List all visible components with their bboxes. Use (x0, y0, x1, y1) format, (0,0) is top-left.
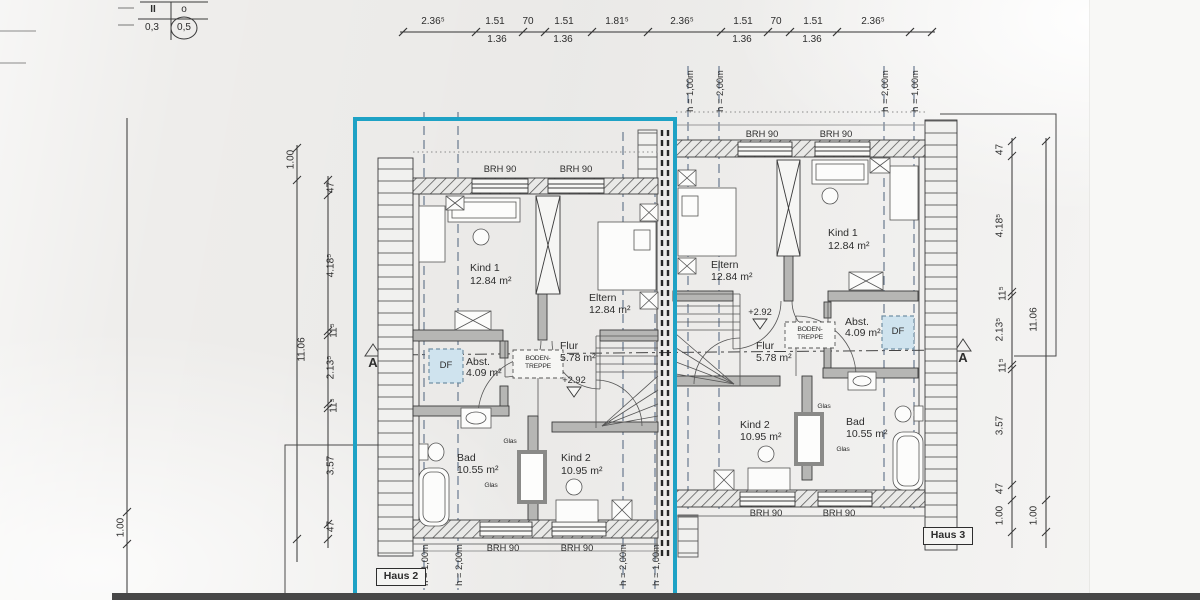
right-dimension-chain (1008, 137, 1050, 548)
dim-top-8: 1.51 (791, 16, 835, 27)
haus2-level-marker-icon (567, 387, 581, 397)
dim-left-seg-6: 47 (326, 505, 337, 549)
haus3-level-label: +2.92 (740, 307, 780, 317)
haus2-bottom-wall (413, 520, 658, 538)
room-haus2-eltern-name: Eltern (589, 292, 659, 304)
room-haus3-eltern-area: 12.84 m² (711, 271, 781, 283)
ref-table-val2: 0,5 (171, 22, 197, 33)
haus3-glas-top: Glas (810, 403, 838, 411)
room-haus3-kind2-name: Kind 2 (740, 419, 810, 431)
dim-top-3: 1.51 (542, 16, 586, 27)
haus3-glas-bottom: Glas (829, 446, 857, 454)
dim-right-outer-bottom: 1.00 (1029, 494, 1040, 538)
room-haus2-bad-name: Bad (457, 452, 517, 464)
dim-left-overall: 11.06 (297, 328, 308, 372)
haus2-brh-top-1: BRH 90 (548, 164, 604, 174)
scan-margin (1090, 0, 1200, 600)
dim-top-sub-2: 1.36 (720, 34, 764, 45)
dim-right-overall: 11.06 (1029, 298, 1040, 342)
dim-left-offset: 1.00 (286, 138, 297, 182)
dim-right-inner-bottom: 1.00 (995, 494, 1006, 538)
haus3-roof-strip (925, 120, 957, 550)
room-haus2-kind2-name: Kind 2 (561, 452, 631, 464)
haus3-df-label: DF (882, 326, 914, 337)
haus3-stairs (676, 294, 740, 386)
ref-table-col1: II (143, 4, 163, 15)
room-haus3-kind2-area: 10.95 m² (740, 431, 810, 443)
dim-right-seg-1: 4.18⁵ (995, 204, 1006, 248)
haus2-brh-top-0: BRH 90 (472, 164, 528, 174)
dim-top-sub-1: 1.36 (541, 34, 585, 45)
haus2-hline-1: h = 2,00m (454, 538, 464, 592)
haus2-hline-2: h = 2,00m (618, 538, 628, 592)
room-haus3-flur-name: Flur (756, 340, 816, 352)
haus2-bodentreppe-line2: TREPPE (513, 363, 563, 371)
dim-right-seg-5: 3.57 (995, 404, 1006, 448)
haus3-brh-top-0: BRH 90 (734, 129, 790, 139)
haus3-hline-1: h = 2,00m (715, 64, 725, 118)
dim-top-0: 2.36⁵ (411, 16, 455, 27)
room-haus2-eltern-area: 12.84 m² (589, 304, 659, 316)
haus3-name-box: Haus 3 (923, 527, 973, 545)
room-haus3-kind1-name: Kind 1 (828, 227, 898, 239)
haus3-hline-3: h = 1,00m (910, 64, 920, 118)
haus2-level-label: +2.92 (554, 375, 594, 385)
room-haus2-flur-name: Flur (560, 340, 620, 352)
scan-bottom-edge (112, 593, 1200, 600)
dim-top-5: 2.36⁵ (660, 16, 704, 27)
haus3-shaft (777, 160, 800, 256)
section-label-left: A (365, 357, 381, 368)
haus3-hline-0: h = 1,00m (685, 64, 695, 118)
room-haus2-kind2-area: 10.95 m² (561, 465, 631, 477)
dim-left-seg-5: 3.57 (326, 444, 337, 488)
haus3-hline-2: h = 2,00m (880, 64, 890, 118)
haus3-bottom-wall (676, 490, 925, 507)
haus3-brh-bottom-0: BRH 90 (738, 508, 794, 518)
dim-left-seg-1: 4.18⁵ (326, 244, 337, 288)
haus2-brh-bottom-1: BRH 90 (549, 543, 605, 553)
dim-left-ground: 1.00 (116, 506, 127, 550)
haus2-brh-bottom-0: BRH 90 (475, 543, 531, 553)
dim-left-seg-4: 11⁵ (329, 384, 340, 428)
haus2-glass-block (519, 452, 545, 502)
room-haus2-kind1-area: 12.84 m² (470, 275, 540, 287)
floor-plan: II o 0,3 0,5 2.36⁵ 1.51 70 1.51 1.81⁵ 2.… (0, 0, 1200, 600)
room-haus2-kind1-name: Kind 1 (470, 262, 540, 274)
haus2-df-label: DF (429, 360, 463, 371)
haus3-level-marker-icon (753, 319, 767, 329)
dim-top-9: 2.36⁵ (851, 16, 895, 27)
haus2-top-wall (413, 178, 658, 194)
ref-table-val1: 0,3 (139, 22, 165, 33)
room-haus3-flur-area: 5.78 m² (756, 352, 816, 364)
reference-table (118, 2, 208, 40)
haus3-top-wall (676, 140, 925, 157)
haus2-name-box: Haus 2 (376, 568, 426, 586)
room-haus2-flur-area: 5.78 m² (560, 352, 620, 364)
dim-top-sub-0: 1.36 (475, 34, 519, 45)
section-label-right: A (955, 352, 971, 363)
haus2-hline-3: h = 1,00m (651, 538, 661, 592)
haus3-bodentreppe-line2: TREPPE (785, 334, 835, 342)
room-haus3-bad-area: 10.55 m² (846, 428, 906, 440)
room-haus3-kind1-area: 12.84 m² (828, 240, 898, 252)
room-haus2-bad-area: 10.55 m² (457, 464, 517, 476)
haus3-brh-top-1: BRH 90 (808, 129, 864, 139)
haus2-roof-strip (378, 158, 413, 556)
haus2-glas-top: Glas (496, 438, 524, 446)
ref-table-col2: o (174, 4, 194, 15)
room-haus3-bad-name: Bad (846, 416, 906, 428)
room-haus3-eltern-name: Eltern (711, 259, 781, 271)
haus3-bodentreppe-line1: BODEN- (785, 326, 835, 334)
dim-left-seg-0: 47 (326, 166, 337, 210)
dim-top-4: 1.81⁵ (595, 16, 639, 27)
dim-right-seg-4: 11⁵ (998, 344, 1009, 388)
dim-right-seg-0: 47 (995, 128, 1006, 172)
haus3-brh-bottom-1: BRH 90 (811, 508, 867, 518)
haus2-glas-bottom: Glas (477, 482, 505, 490)
haus2-bodentreppe-line1: BODEN- (513, 355, 563, 363)
dim-top-sub-3: 1.36 (790, 34, 834, 45)
